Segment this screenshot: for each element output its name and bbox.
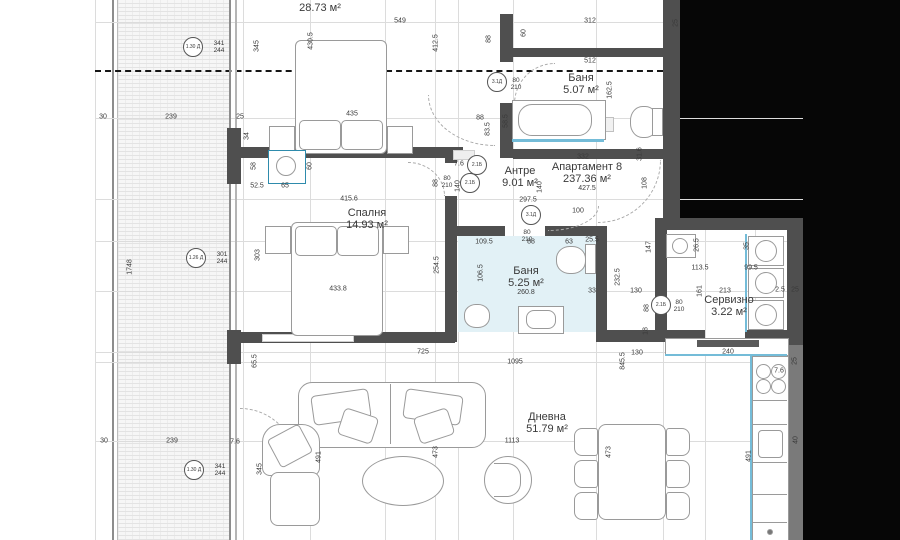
window-tag: 1.30 Д — [184, 460, 204, 480]
dim-label: 30 — [99, 114, 107, 121]
dim-label: 162.5 — [607, 81, 614, 99]
window-size-label: 341244 — [214, 40, 225, 54]
door-tag: 2.1Б — [467, 155, 487, 175]
door-tag: 3.1Д — [521, 205, 541, 225]
outside-area-top-right — [678, 0, 900, 222]
dim-label: 100 — [572, 208, 584, 215]
dim-label: 58 — [251, 162, 258, 170]
dim-label: 25 — [236, 114, 244, 121]
dim-label: 7.6 — [230, 439, 240, 446]
dim-label: 240 — [722, 349, 734, 356]
door-tag: 2.1Б — [651, 295, 671, 315]
dim-label: 88 — [644, 304, 651, 312]
counter-divider — [752, 522, 787, 523]
dim-label: 58.5 — [503, 114, 510, 128]
dim-label: 25 — [673, 19, 680, 27]
wall-servizno-right — [787, 218, 803, 345]
dim-label: 99.5 — [744, 265, 758, 272]
dining-chair — [666, 492, 690, 520]
counter-divider — [752, 424, 787, 425]
dining-chair — [574, 460, 598, 488]
dim-label: 473 — [606, 446, 613, 458]
dim-label: 88 — [433, 179, 440, 187]
dim-label: 25 — [792, 357, 799, 365]
dim-label: 25.5 — [585, 237, 599, 244]
toilet-tank-bath2 — [585, 244, 596, 274]
room-label: Спалня14.93 м² — [346, 207, 388, 231]
sink-servizno-basin — [672, 238, 688, 254]
dim-label: 25 — [791, 287, 799, 294]
dim-label: 60 — [521, 29, 528, 37]
coffee-table — [362, 456, 444, 506]
dim-label: 473 — [433, 446, 440, 458]
wall-servizno-top — [655, 218, 803, 230]
window-size-label: 341244 — [215, 463, 226, 477]
window-tag: 1.26 Д — [186, 248, 206, 268]
counter-divider — [752, 494, 787, 495]
stove-burner — [771, 379, 786, 394]
pillow — [341, 120, 383, 150]
kitchen-hood — [697, 340, 759, 347]
room-label: Антре9.01 м² — [502, 165, 538, 189]
nightstand — [387, 126, 413, 154]
door-arc-bedroom1 — [428, 95, 495, 146]
left-facade-line-2 — [235, 0, 237, 540]
dining-chair — [666, 428, 690, 456]
round-chair-inner — [494, 463, 521, 497]
room-label: Апартамент 8237.36 м²427.5 — [552, 161, 622, 193]
dim-label: 725 — [417, 349, 429, 356]
wall-right-exterior-top — [663, 0, 680, 220]
dining-chair — [574, 492, 598, 520]
dim-label: 40 — [793, 436, 800, 444]
door-size-label: 80210 — [442, 175, 453, 189]
pillow — [299, 120, 341, 150]
stove-burner — [756, 379, 771, 394]
bathtub-inner — [518, 104, 592, 136]
kitchen-sink — [758, 430, 783, 458]
counter-divider — [752, 462, 787, 463]
toilet-bath2 — [556, 246, 586, 274]
floor-plan: 302392554943531251252.565415.6433.8297.5… — [0, 0, 900, 540]
dim-label: 147 — [646, 241, 653, 253]
sofa-seam — [390, 384, 391, 444]
dim-label: 88 — [486, 35, 493, 43]
terrace-outer-wall — [112, 0, 114, 540]
dining-chair — [666, 460, 690, 488]
washer-drum — [755, 272, 777, 294]
dim-label: 52.5 — [250, 183, 264, 190]
dim-label: 491 — [746, 450, 753, 462]
dim-label: 303 — [255, 249, 262, 261]
dim-label: 109.5 — [475, 239, 493, 246]
pillow — [295, 226, 337, 256]
dining-chair — [574, 428, 598, 456]
room-label: Дневна51.79 м² — [526, 411, 568, 435]
dim-label: 297.5 — [519, 197, 537, 204]
window-tag: 1.30 Д — [183, 37, 203, 57]
door-size-label: 80210 — [522, 229, 533, 243]
toilet-tank-bath1 — [652, 108, 663, 136]
dim-label: 1095 — [507, 359, 523, 366]
dim-label: 2.5 — [775, 287, 785, 294]
dim-label: 1113 — [505, 438, 520, 445]
dim-label: 239 — [165, 114, 177, 121]
dim-label: 18 — [643, 327, 650, 335]
wall-bath1-top — [511, 48, 680, 57]
facade-pier — [227, 128, 241, 184]
dim-label: 106.5 — [478, 264, 485, 282]
sink-basin-bath2 — [526, 310, 556, 329]
dim-label: 232.5 — [615, 268, 622, 286]
dim-label: 108 — [642, 177, 649, 189]
washer-drum — [755, 240, 777, 262]
window-size-label: 301244 — [217, 251, 228, 265]
dim-label: 130 — [630, 288, 642, 295]
room-label: Сервизно3.22 м² — [704, 294, 753, 318]
dim-label: 1748 — [127, 259, 134, 275]
wall-bedroom2-right — [445, 196, 457, 342]
counter-knob — [767, 529, 773, 535]
dim-label: 35 — [744, 242, 751, 250]
dim-label: 34 — [244, 132, 251, 140]
dim-label: 65.5 — [252, 354, 259, 368]
dim-label: 254.5 — [434, 256, 441, 274]
guide-line — [95, 362, 803, 363]
wall-bath2-top-left — [457, 226, 505, 236]
ottoman — [270, 472, 320, 526]
dim-label: 130 — [631, 350, 643, 357]
dim-label: 7.6 — [454, 161, 464, 168]
bathtub-waterline — [512, 139, 604, 142]
dining-table — [598, 424, 666, 520]
dim-label: 88 — [476, 115, 484, 122]
dim-label: 345 — [257, 463, 264, 475]
door-size-label: 80210 — [511, 77, 522, 91]
outside-area-right — [801, 214, 900, 540]
dim-label: 161 — [697, 285, 704, 297]
dim-label: 65 — [281, 183, 289, 190]
dim-label: 26.5 — [694, 238, 701, 252]
dim-label: 433.8 — [329, 286, 347, 293]
kitchen-counter-line-right — [750, 356, 752, 540]
nightstand — [265, 226, 291, 254]
dim-label: 491 — [316, 451, 323, 463]
dim-label: 63 — [565, 239, 573, 246]
dim-label: 415.6 — [340, 196, 358, 203]
dim-label: 549 — [394, 18, 406, 25]
dim-label: 430.5 — [308, 32, 315, 50]
plot-edge-line — [95, 0, 96, 540]
washer-drum — [755, 304, 777, 326]
door-tag: 2.1Б — [460, 173, 480, 193]
left-facade-line — [229, 0, 231, 540]
dim-label: 83.5 — [485, 122, 492, 136]
dim-label: 512 — [584, 58, 596, 65]
dim-label: 239 — [166, 438, 178, 445]
stove-burner — [756, 364, 771, 379]
terrace-outer-wall-2 — [117, 0, 118, 540]
room-label: Баня5.07 м² — [563, 72, 599, 96]
terrace-hatch — [118, 0, 229, 540]
dim-label: 845.5 — [620, 352, 627, 370]
dim-label: 113.5 — [692, 265, 709, 272]
dim-label: 33 — [588, 288, 596, 295]
dim-label: 345 — [254, 40, 261, 52]
door-tag: 3.1Д — [487, 72, 507, 92]
door-size-label: 80210 — [674, 299, 685, 313]
dim-label: 332 — [577, 154, 589, 161]
dim-label: 312 — [584, 18, 596, 25]
dim-label: 412.5 — [433, 34, 440, 52]
dim-label: 435 — [346, 111, 358, 118]
facade-pier — [227, 330, 241, 364]
room-label: Баня5.25 м²260.8 — [508, 265, 544, 297]
dim-label: 60 — [307, 162, 314, 170]
room-label: Спалня28.73 м² — [299, 0, 341, 14]
counter-divider — [752, 400, 787, 401]
vanity-basin — [276, 156, 296, 176]
bidet-bath2 — [464, 304, 490, 328]
dim-label: 30 — [100, 438, 108, 445]
dim-label: 7.6 — [774, 368, 784, 375]
dim-label: 31.6 — [637, 147, 644, 161]
